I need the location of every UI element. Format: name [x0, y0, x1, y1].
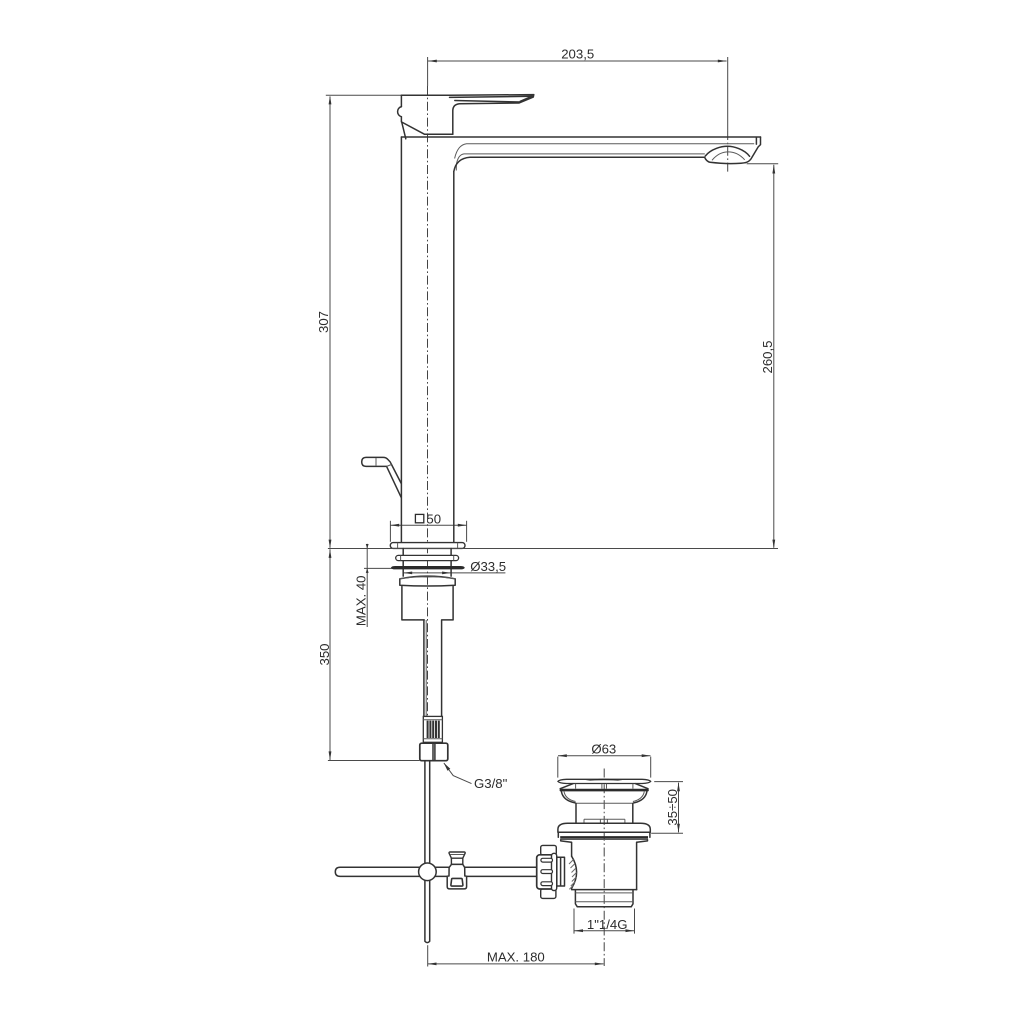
svg-text:50: 50	[426, 512, 441, 527]
svg-text:260,5: 260,5	[760, 340, 775, 373]
svg-text:Ø63: Ø63	[591, 742, 616, 757]
svg-text:307: 307	[316, 311, 331, 333]
svg-text:1"1/4G: 1"1/4G	[587, 917, 628, 932]
svg-text:MAX. 40: MAX. 40	[353, 576, 368, 627]
svg-text:Ø33,5: Ø33,5	[470, 559, 506, 574]
svg-text:35÷50: 35÷50	[665, 789, 680, 826]
svg-text:MAX. 180: MAX. 180	[487, 950, 545, 965]
svg-text:350: 350	[317, 643, 332, 665]
svg-text:203,5: 203,5	[561, 47, 594, 62]
svg-text:G3/8": G3/8"	[474, 776, 508, 791]
